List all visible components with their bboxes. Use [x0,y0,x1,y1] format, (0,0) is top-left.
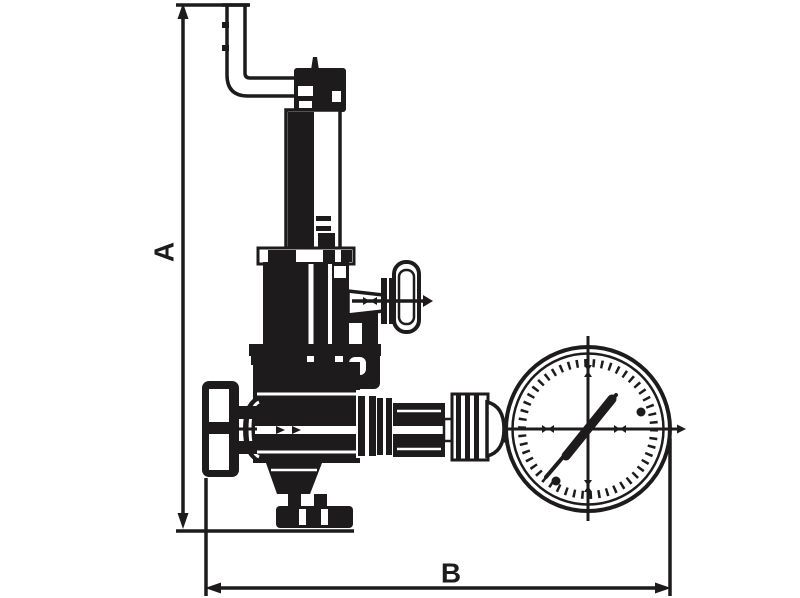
dimension-a-arrow-down-icon [178,513,189,529]
flange-segment [268,250,296,262]
handwheel-stem-collar [238,406,257,419]
body-mass [253,362,360,463]
pipe-outer-edge [227,5,300,96]
knurl-ridge [474,394,479,460]
fitting-bar [377,398,383,455]
outlet-flange [276,506,353,528]
bonnet-shade [288,112,314,250]
tee-screw-tip [423,295,433,307]
pipe-tick [222,45,229,51]
housing-notch [334,266,346,278]
handwheel [202,381,257,477]
outlet-flange-slot [299,509,306,525]
centerline-tip [677,425,686,434]
port-flange-bar [369,396,376,456]
fitting-bar [386,398,392,455]
pressure-gauge [504,336,686,521]
cap-detail [299,101,312,108]
drawing-canvas: A B [0,0,800,598]
gauge-fitting [377,394,513,460]
body-centerline-channel [255,426,358,434]
outlet [266,463,353,528]
handwheel-window [209,434,229,470]
flange-segment [341,250,352,262]
pipe-inner-edge [245,5,300,78]
cap-detail [332,91,341,102]
handwheel-window [209,389,229,422]
port-flange-bar [358,396,365,456]
cap-detail [298,86,313,96]
outlet-neck-bar [314,494,327,508]
spring-coil [316,226,331,231]
relief-duct [347,311,378,348]
adjuster-cap [294,57,346,112]
pipe-tick [222,22,229,28]
knurl-ridge [456,394,461,460]
flange-segment [323,250,335,262]
dial-marker-dot [637,408,646,417]
valve-technical-drawing: A B [0,0,800,598]
valve-body [243,344,382,463]
handwheel-stem-collar [238,441,257,454]
needle-tail-dot [552,477,561,486]
tee-handle [347,262,433,348]
dimension-a-label: A [149,242,180,262]
outlet-neck-bar [288,494,301,508]
spring-coil [316,216,331,221]
spring-housing [258,110,354,352]
knurl-ridge [465,394,470,460]
dimension-b-label: B [441,558,461,589]
outlet-cone [266,463,322,494]
union-centerline-channel [393,426,445,434]
fitting-dome [487,402,504,456]
outlet-flange-slot [321,509,328,525]
vent-elbow-pipe [222,5,300,96]
